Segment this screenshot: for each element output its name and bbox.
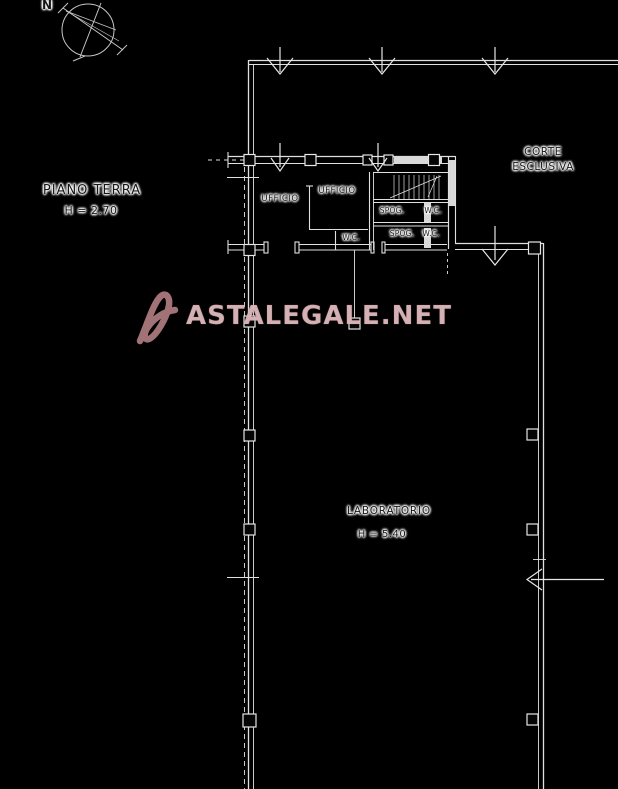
astalegale-logo-icon [140,295,175,341]
north-compass-icon [58,3,127,61]
laboratorio-height-label: H = 5.40 [358,529,407,540]
room-label-spog-top: SPOG. [380,206,404,215]
column-markers [243,155,541,728]
room-label-wc-bottom: W.C. [422,229,439,238]
compass-north-label: N [42,0,52,12]
floorplan-screenshot: N PIANO TERRA H = 2.70 CORTE ESCLUSIVA U… [0,0,618,789]
watermark-text: ASTALEGALE.NET [186,301,452,331]
court-label-line2: ESCLUSIVA [512,161,574,173]
room-label-laboratorio: LABORATORIO [347,505,431,517]
room-label-spog-bottom: SPOG. [390,229,414,238]
room-label-ufficio-center: UFFICIO [318,186,355,196]
floor-height-label: H = 2.70 [65,204,118,217]
court-label-line1: CORTE [524,146,562,158]
room-label-wc-center: W.C. [342,233,359,242]
room-label-ufficio-left: UFFICIO [261,194,298,204]
floor-title: PIANO TERRA [43,183,141,198]
plan-drawing [0,0,618,789]
room-label-wc-top: W.C. [424,206,441,215]
